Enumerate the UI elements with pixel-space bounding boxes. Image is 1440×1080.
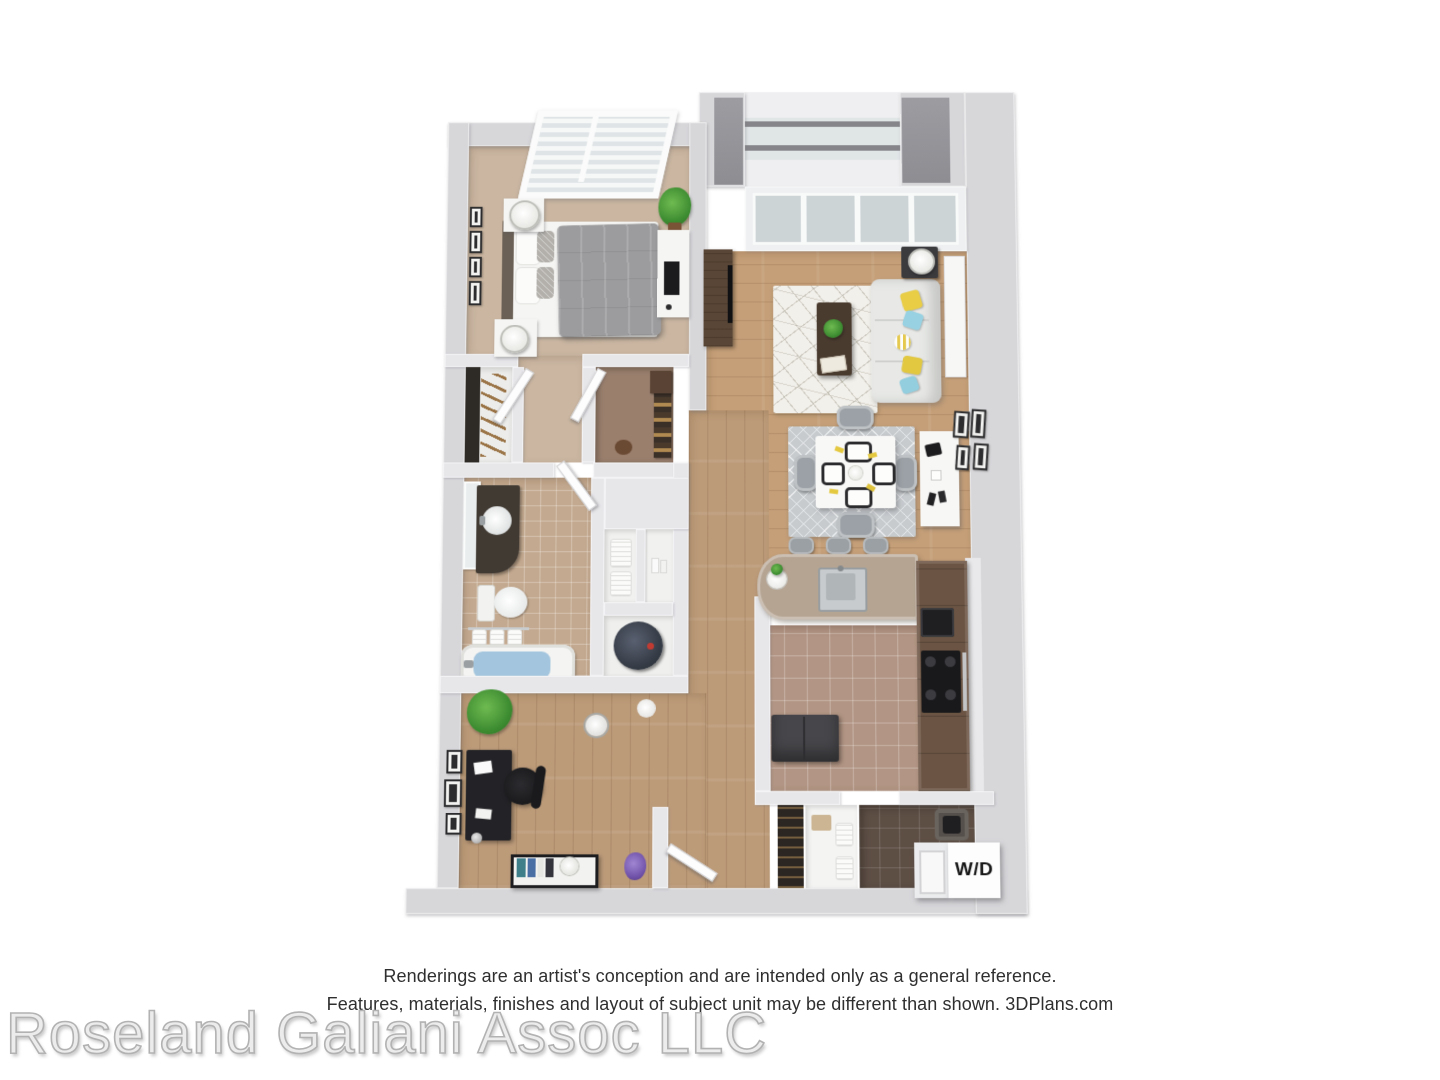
yellow-napkin: [829, 489, 838, 495]
hand-towel: [507, 629, 522, 645]
bed-pillow-gray: [537, 231, 555, 263]
balcony-right-pillar-face: [902, 98, 951, 183]
bar-stool: [863, 537, 889, 554]
stove-burner: [925, 689, 936, 700]
bookshelf-flowers: [560, 857, 578, 875]
kitchen-wall: [754, 596, 770, 791]
books: [517, 858, 526, 877]
table-lamp: [908, 248, 935, 274]
hand-towel: [490, 629, 505, 645]
placemat: [872, 462, 896, 485]
bar-faucet: [838, 566, 844, 572]
ceiling-light: [585, 715, 607, 736]
water-heater: [614, 621, 663, 669]
dining-chair: [893, 455, 917, 491]
watermark: Roseland Galiani Assoc LLC: [6, 1004, 767, 1065]
bed-pillow-gray: [536, 267, 554, 299]
closet-shelf-unit: [465, 367, 481, 462]
bedroom-wall-art: [469, 257, 482, 277]
towel-roll: [835, 823, 853, 847]
dining-wall-art: [953, 411, 970, 438]
placemat: [845, 487, 873, 508]
nightstand-lamp: [509, 200, 540, 230]
bathroom-sink: [482, 506, 512, 535]
balcony-rail: [745, 121, 900, 126]
bathtub-faucet: [464, 660, 474, 668]
kitchen-laundry-wall: [755, 791, 840, 805]
toiletry-bottles: [651, 558, 659, 573]
kitchen-laundry-wall: [899, 791, 994, 805]
washer-dryer-label: W/D: [948, 843, 1001, 899]
washer-dryer-door: [919, 850, 945, 894]
dining-chair: [837, 512, 874, 538]
stove-burner: [945, 656, 956, 667]
striped-round-pillow: [894, 334, 911, 350]
dining-wall-art: [970, 409, 986, 438]
books: [545, 858, 553, 877]
bathroom-faucet: [479, 516, 485, 526]
wh-closet-wall: [604, 602, 673, 616]
oven-handle: [962, 652, 967, 710]
office-wall-art: [446, 750, 462, 774]
hand-towel: [472, 629, 487, 645]
books: [528, 858, 536, 877]
dining-wall-art: [955, 445, 970, 471]
water-heater-valve: [647, 643, 654, 650]
toilet-tank: [477, 585, 495, 622]
dining-chair: [794, 455, 818, 491]
placemat: [845, 442, 872, 463]
centerpiece: [849, 466, 863, 479]
closet-bottom-wall: [443, 462, 554, 477]
bar-stool: [789, 537, 815, 554]
entry-wall-stub: [652, 807, 668, 888]
right-wall-door: [944, 256, 967, 377]
bath-office-wall: [440, 676, 689, 694]
linen-divider: [636, 529, 646, 602]
toiletry-bottles: [660, 560, 667, 573]
microwave: [920, 608, 954, 637]
balcony-rail: [745, 145, 900, 151]
bar-stool: [826, 537, 852, 554]
kitchen-floor: [761, 625, 925, 791]
office-wall-art: [445, 813, 461, 835]
dining-chair: [837, 406, 874, 430]
utility-sink-basin: [943, 816, 961, 834]
bedroom-wall-art: [470, 207, 483, 227]
placemat: [821, 462, 845, 485]
page: { "floorplan": { "title": "3D apartment …: [0, 0, 1440, 1080]
floor-plan: W/D: [400, 90, 1040, 930]
storage-box: [811, 815, 831, 831]
books: [538, 858, 544, 877]
living-windows: [753, 193, 959, 245]
disclaimer-line-1: Renderings are an artist's conception an…: [0, 966, 1440, 987]
closet-bag: [615, 440, 633, 455]
desk-papers: [473, 761, 492, 775]
tv: [728, 265, 733, 323]
towel-roll: [836, 856, 854, 880]
closet-top-wall: [582, 354, 689, 367]
bedroom-wall-art: [469, 281, 482, 305]
desk-papers: [475, 808, 492, 819]
nightstand-lamp: [500, 325, 529, 353]
toilet-bowl: [494, 587, 528, 618]
bedroom-tv: [664, 261, 680, 295]
duvet: [557, 223, 662, 337]
bathtub-water: [473, 651, 550, 678]
balcony-left-pillar-face: [714, 98, 743, 185]
refrigerator-divider: [803, 717, 805, 760]
ceiling-light: [637, 699, 656, 718]
walkin-shelf-box: [650, 371, 671, 394]
coat-closet: [778, 805, 804, 888]
bedroom-window: [518, 110, 678, 198]
console-decor: [931, 470, 942, 480]
linen-towels: [610, 571, 632, 596]
office-wall-art: [444, 779, 462, 807]
desk-lamp: [471, 833, 482, 844]
bar-sink-basin: [826, 573, 856, 600]
dining-wall-art: [973, 443, 989, 471]
stove-burner: [925, 656, 936, 667]
dresser-decor: [666, 304, 672, 310]
bedroom-wall-art: [469, 231, 482, 253]
yellow-pillow: [901, 355, 923, 375]
closet-block-wall: [605, 478, 689, 530]
linen-towels: [610, 539, 632, 568]
stove-burner: [945, 689, 956, 700]
